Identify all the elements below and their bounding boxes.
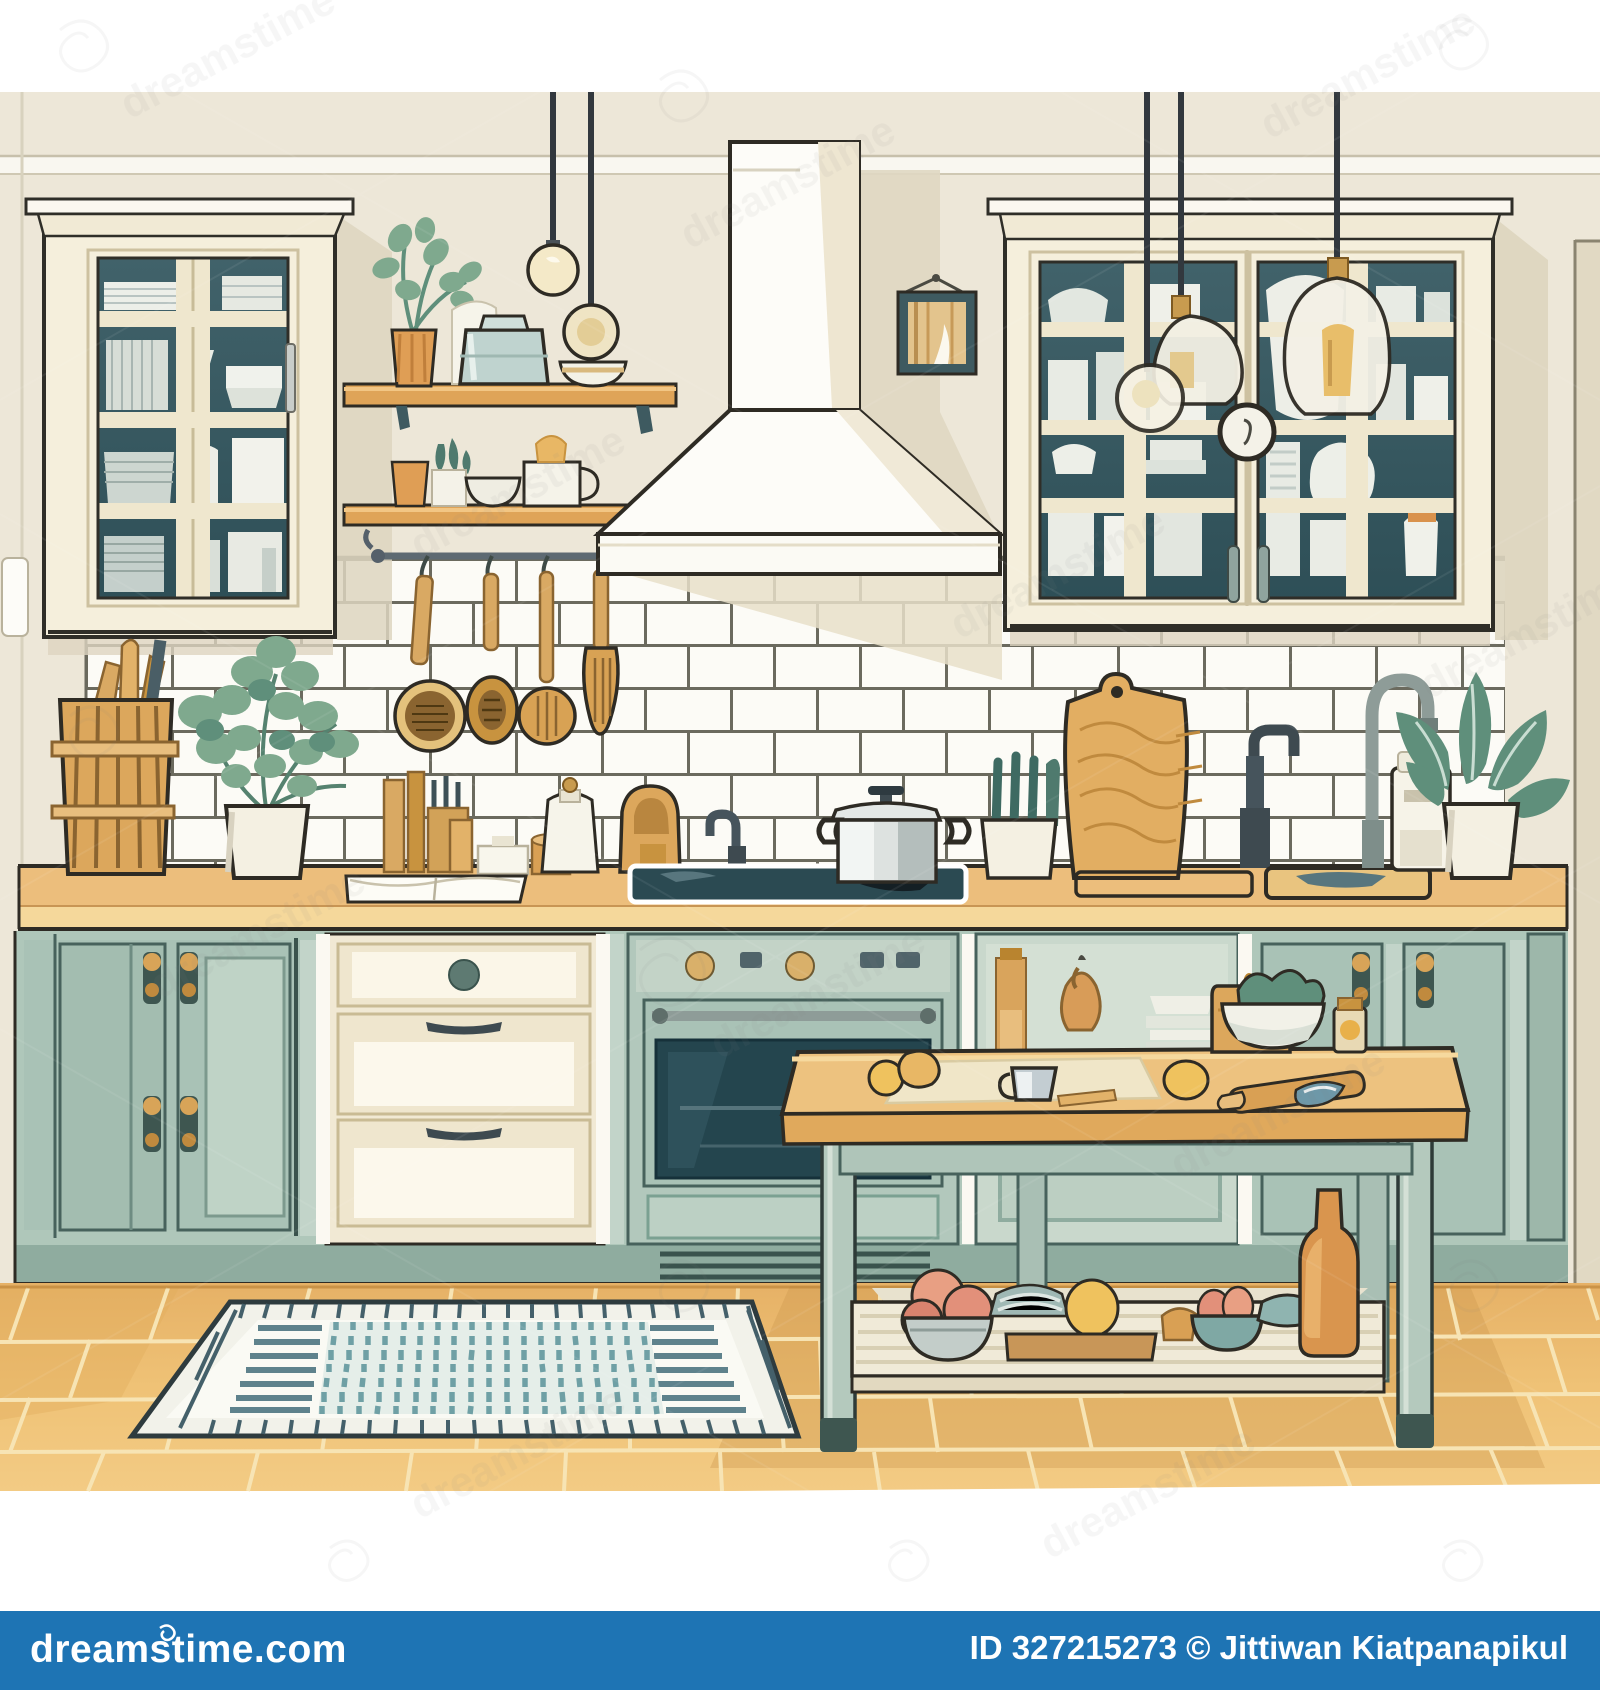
svg-text:ID 327215273 © Jittiwan Kiatpa: ID 327215273 © Jittiwan Kiatpanapikul [970,1629,1568,1666]
svg-text:dreamstime.com: dreamstime.com [30,1628,347,1671]
